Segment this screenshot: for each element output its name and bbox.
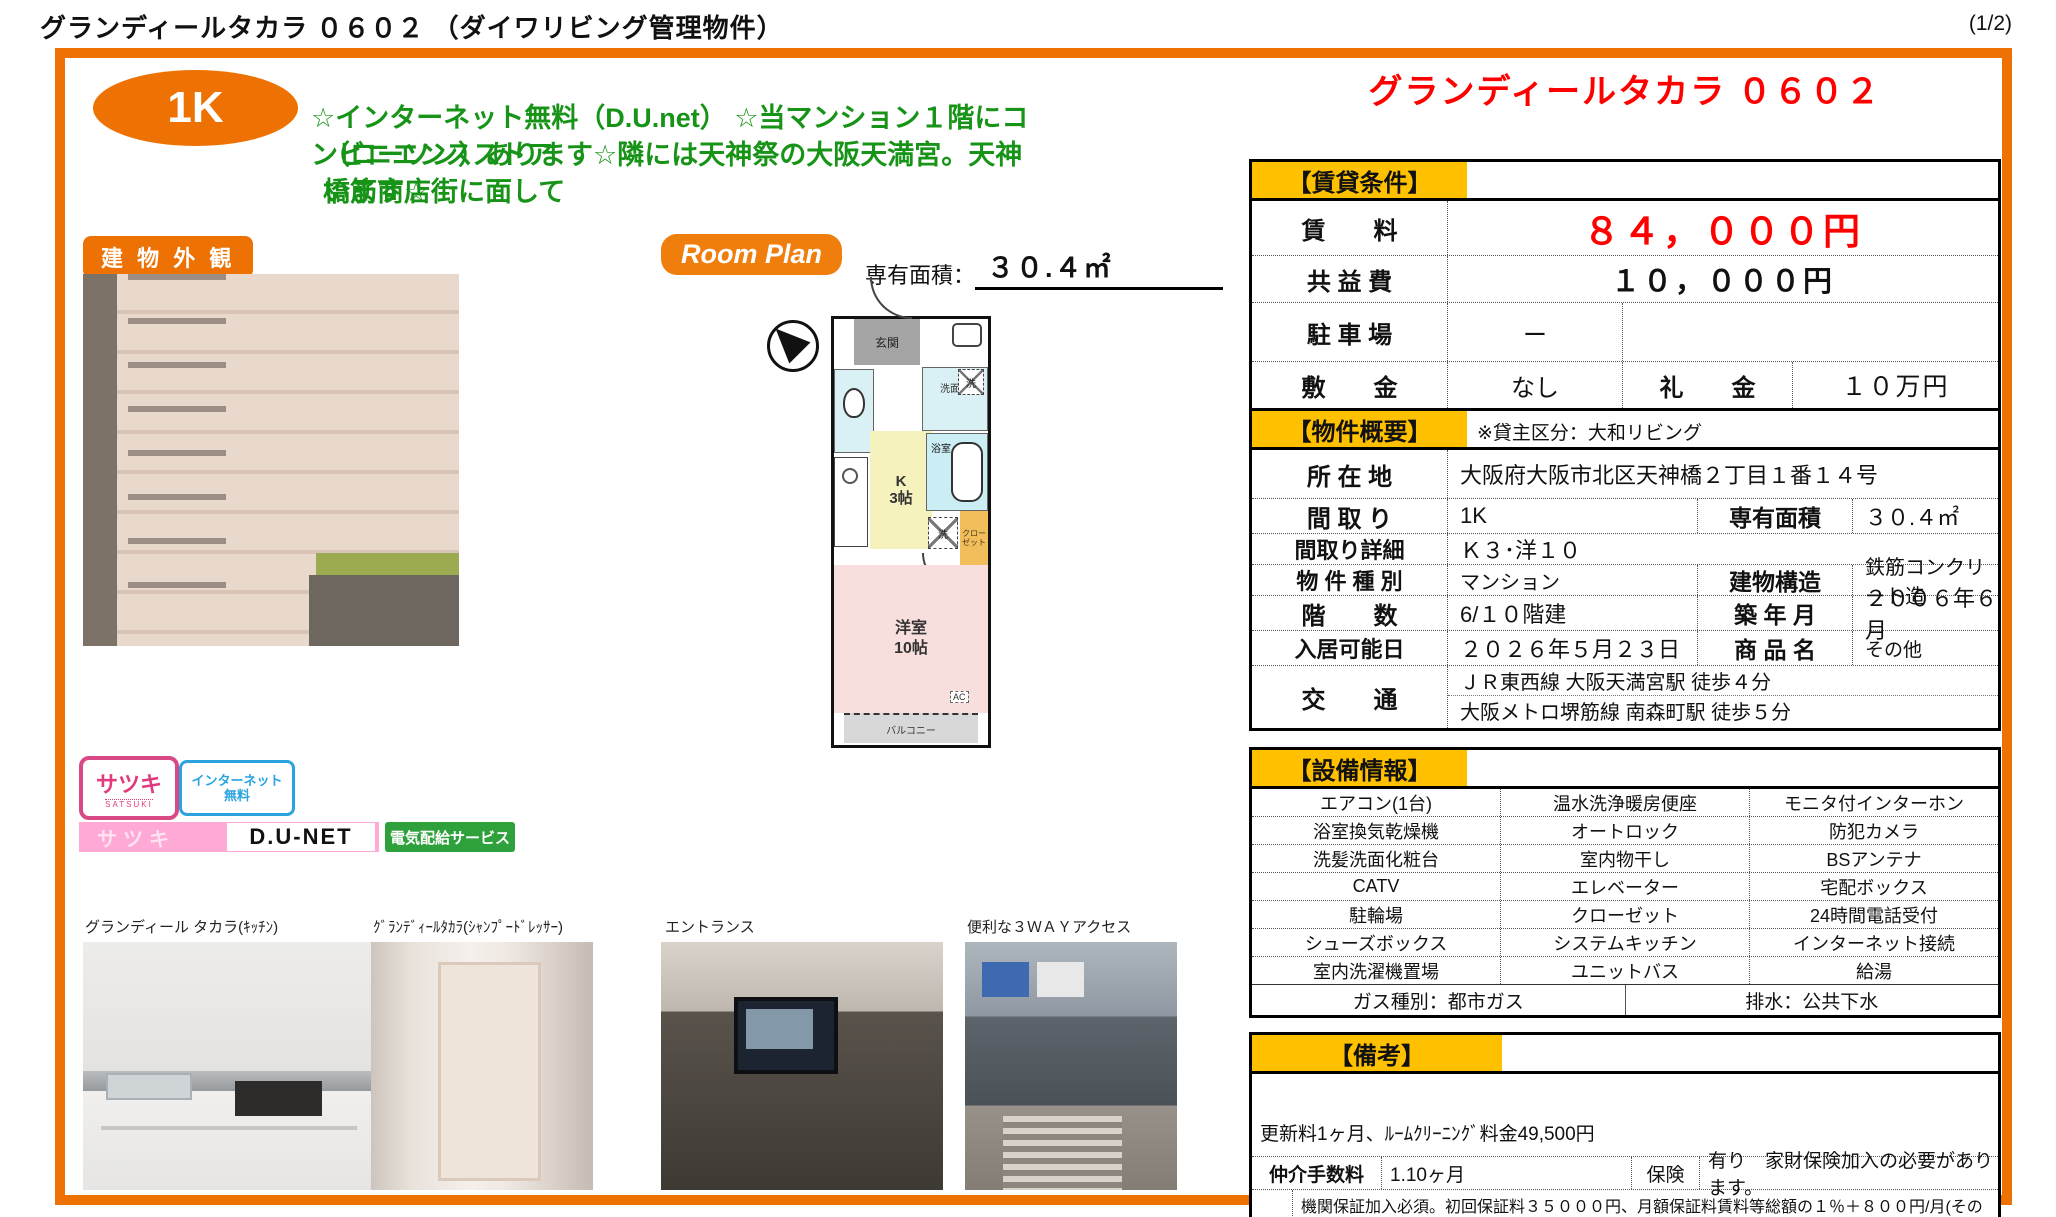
equipment-row: 室内洗濯機置場 ユニットバス 給湯 (1252, 957, 1998, 985)
document-title: グランディールタカラ ０６０２ （ダイワリビング管理物件） (40, 8, 784, 45)
satsuki-logo: サツキ SATSUKI (79, 756, 179, 820)
orange-frame: 1K ☆インターネット無料（D.U.net） ☆当マンション１階にコンビニエンス… (55, 48, 2012, 1205)
rental-conditions-spacer (1467, 162, 1998, 198)
kitchen-stove-shape (235, 1081, 323, 1116)
floorplan-basin-shape (952, 323, 982, 347)
equipment-row: エアコン(1台) 温水洗浄暖房便座 モニタ付インターホン (1252, 789, 1998, 817)
equipment-chip: 【設備情報】 (1252, 750, 1467, 786)
property-outline-table: 【物件概要】 ※貸主区分：大和リビング 所 在 地 大阪府大阪市北区天神橋２丁目… (1249, 411, 2001, 731)
property-type-label: 物 件 種 別 (1252, 565, 1448, 595)
deposit-keymoney-row: 敷 金 なし 礼 金 １０万円 (1252, 362, 1998, 408)
address-label: 所 在 地 (1252, 450, 1448, 498)
floorplan-closet: クロー ゼット (960, 511, 988, 565)
parking-value: ー (1448, 303, 1623, 361)
page-number: (1/2) (1969, 12, 2012, 36)
exclusive-area-label: 専有面積 (1698, 499, 1853, 533)
floorplan-kitchen-counter (834, 457, 868, 547)
product-name-label: 商 品 名 (1698, 631, 1853, 665)
room-plan-badge: Room Plan (661, 234, 842, 275)
equipment-item: CATV (1252, 873, 1501, 900)
exterior-label-badge: 建 物 外 観 (83, 236, 253, 278)
access-label: 交 通 (1252, 666, 1448, 728)
cabinet-handle-shape (101, 1126, 358, 1131)
kitchen-sink-shape (106, 1073, 192, 1099)
floors-value: 6/１０階建 (1448, 596, 1698, 630)
building-balconies-texture (128, 274, 226, 616)
drain-type: 排水：公共下水 (1626, 985, 1999, 1015)
rental-conditions-chip: 【賃貸条件】 (1252, 162, 1467, 198)
caution-text-body: 機関保証加入必須。初回保証料３５０００円、月額保証料賃料等総額の１％＋８００円/… (1301, 1199, 1983, 1217)
kitchen-photo (83, 942, 375, 1190)
stone-wall-shape (309, 575, 459, 646)
station-sign-white (1037, 962, 1084, 997)
remarks-table: 【備考】 更新料1ヶ月、ﾙｰﾑｸﾘｰﾆﾝｸﾞ料金49,500円 仲介手数料 1.… (1249, 1032, 2001, 1217)
equipment-item: 洗髪洗面化粧台 (1252, 845, 1501, 872)
equipment-item: 室内洗濯機置場 (1252, 957, 1501, 984)
equipment-table: 【設備情報】 エアコン(1台) 温水洗浄暖房便座 モニタ付インターホン 浴室換気… (1249, 747, 2001, 1018)
equipment-item: 宅配ボックス (1750, 873, 1998, 900)
equipment-row: シューズボックス システムキッチン インターネット接続 (1252, 929, 1998, 957)
layout-label: 間 取 り (1252, 499, 1448, 533)
movein-value: ２０２６年５月２３日 (1448, 631, 1698, 665)
floorplan-bath: 浴室 (926, 433, 988, 511)
caution-row: 注 意 事 項 機関保証加入必須。初回保証料３５０００円、月額保証料賃料等総額の… (1252, 1190, 1998, 1217)
renewal-fee-text: 更新料1ヶ月、ﾙｰﾑｸﾘｰﾆﾝｸﾞ料金49,500円 (1252, 1074, 1998, 1157)
rental-conditions-table: 【賃貸条件】 賃 料 ８４，０００円 共 益 費 １０，０００円 駐 車 場 ー (1249, 159, 2001, 411)
caution-text: 機関保証加入必須。初回保証料３５０００円、月額保証料賃料等総額の１％＋８００円/… (1293, 1190, 1998, 1217)
built-date-label: 築 年 月 (1698, 596, 1853, 630)
bathtub-shape (951, 442, 983, 502)
property-name-title: グランディールタカラ ０６０２ (1249, 58, 2001, 113)
equipment-item: クローゼット (1501, 901, 1750, 928)
access-lines: ＪＲ東西線 大阪天満宮駅 徒歩４分 大阪メトロ堺筋線 南森町駅 徒歩５分 (1448, 666, 1998, 728)
floorplan-entrance: 玄関 (854, 319, 920, 365)
satsuki-logo-text: サツキ (96, 767, 162, 799)
station-sign-blue (982, 962, 1029, 997)
floors-built-row: 階 数 6/１０階建 築 年 月 ２００６年６月 (1252, 596, 1998, 631)
access-line-2: 大阪メトロ堺筋線 南森町駅 徒歩５分 (1448, 696, 1998, 725)
parking-empty-cell (1623, 303, 1998, 361)
caution-label: 注 意 事 項 (1252, 1190, 1293, 1217)
equipment-item: インターネット接続 (1750, 929, 1998, 956)
equipment-item: システムキッチン (1501, 929, 1750, 956)
photo-caption-shampoo-dresser: ｸﾞﾗﾝﾃﾞｨｰﾙﾀｶﾗ(ｼｬﾝﾌﾟｰﾄﾞﾚｯｻｰ) (373, 916, 563, 937)
common-fee-label: 共 益 費 (1252, 256, 1448, 302)
remarks-chip: 【備考】 (1252, 1035, 1502, 1071)
equipment-item: 浴室換気乾燥機 (1252, 817, 1501, 844)
floor-area-line: 専有面積： ３０.４㎡ (865, 246, 1223, 290)
rent-row: 賃 料 ８４，０００円 (1252, 201, 1998, 256)
equipment-item: 給湯 (1750, 957, 1998, 984)
station-access-photo (965, 942, 1177, 1190)
layout-area-row: 間 取 り 1K 専有面積 ３０.４㎡ (1252, 499, 1998, 534)
property-detail-panel: グランディールタカラ ０６０２ 【賃貸条件】 賃 料 ８４，０００円 共 益 費… (1249, 58, 2001, 1217)
address-value: 大阪府大阪市北区天神橋２丁目１番１４号 (1448, 450, 1998, 498)
flyer-page: グランディールタカラ ０６０２ （ダイワリビング管理物件） (1/2) 1K ☆… (0, 0, 2056, 1217)
layout-value: 1K (1448, 499, 1698, 533)
floors-label: 階 数 (1252, 596, 1448, 630)
equipment-item: 室内物干し (1501, 845, 1750, 872)
equipment-item: ユニットバス (1501, 957, 1750, 984)
satsuki-logo-subtext: SATSUKI (105, 799, 153, 809)
equipment-item: オートロック (1501, 817, 1750, 844)
brokerage-label: 仲介手数料 (1252, 1157, 1382, 1189)
equipment-item: BSアンテナ (1750, 845, 1998, 872)
gas-drain-row: ガス種別：都市ガス 排水：公共下水 (1252, 985, 1998, 1015)
equipment-item: 駐輪場 (1252, 901, 1501, 928)
stove-ring-shape (842, 468, 858, 484)
entrance-photo (661, 942, 943, 1190)
photo-caption-3way-access: 便利な３ＷＡＹアクセス (967, 916, 1131, 937)
built-date-value: ２００６年６月 (1853, 596, 1998, 630)
layout-type-badge: 1K (93, 70, 298, 146)
equipment-header: 【設備情報】 (1252, 750, 1998, 789)
brokerage-value: 1.10ヶ月 (1382, 1157, 1632, 1189)
station-stairs-shape (1003, 1116, 1122, 1190)
equipment-item: 温水洗浄暖房便座 (1501, 789, 1750, 816)
structure-label: 建物構造 (1698, 565, 1853, 595)
gas-type: ガス種別：都市ガス (1252, 985, 1626, 1015)
floor-plan: 玄関 洗面室 洗 K 3帖 浴室 洗 クロー ゼット 洋室 10帖 (831, 316, 991, 748)
common-fee-row: 共 益 費 １０，０００円 (1252, 256, 1998, 303)
satsuki-banner-text: サツキ (79, 823, 175, 852)
satsuki-dunet-banner: サツキ D.U-NET (79, 822, 379, 852)
equipment-item: エレベーター (1501, 873, 1750, 900)
address-row: 所 在 地 大阪府大阪市北区天神橋２丁目１番１４号 (1252, 450, 1998, 499)
entry-door-arc (870, 277, 912, 319)
floorplan-washer-2: 洗 (928, 517, 958, 549)
remarks-header: 【備考】 (1252, 1035, 1998, 1074)
key-money-label: 礼 金 (1623, 362, 1793, 408)
shampoo-dresser-photo (371, 942, 593, 1190)
rent-value: ８４，０００円 (1448, 201, 1998, 255)
equipment-item: 防犯カメラ (1750, 817, 1998, 844)
electric-supply-badge: 電気配給サービス (385, 822, 515, 852)
equipment-item: 24時間電話受付 (1750, 901, 1998, 928)
building-exterior-photo (83, 274, 459, 646)
rent-label: 賃 料 (1252, 201, 1448, 255)
monitor-glow-shape (746, 1009, 814, 1049)
movein-label: 入居可能日 (1252, 631, 1448, 665)
access-row: 交 通 ＪＲ東西線 大阪天満宮駅 徒歩４分 大阪メトロ堺筋線 南森町駅 徒歩５分 (1252, 666, 1998, 728)
common-fee-value: １０，０００円 (1448, 256, 1998, 302)
equipment-item: モニタ付インターホン (1750, 789, 1998, 816)
parking-row: 駐 車 場 ー (1252, 303, 1998, 362)
floorplan-toilet-room (834, 369, 874, 453)
floorplan-kitchen: K 3帖 (870, 431, 932, 549)
toilet-bowl-shape (843, 388, 865, 418)
compass-icon (767, 320, 819, 372)
deposit-label: 敷 金 (1252, 362, 1448, 408)
exclusive-area-value: ３０.４㎡ (1853, 499, 1998, 533)
equipment-item: シューズボックス (1252, 929, 1501, 956)
hallway-door-shape (438, 962, 542, 1181)
photo-caption-kitchen: グランディール タカラ(ｷｯﾁﾝ) (85, 916, 278, 937)
equipment-row: 駐輪場 クローゼット 24時間電話受付 (1252, 901, 1998, 929)
rental-conditions-header: 【賃貸条件】 (1252, 162, 1998, 201)
insurance-value: 有り 家財保険加入の必要があります。 (1700, 1157, 1998, 1189)
floorplan-washer-1: 洗 (958, 369, 984, 395)
remarks-spacer (1502, 1035, 1998, 1071)
property-outline-header: 【物件概要】 ※貸主区分：大和リビング (1252, 411, 1998, 450)
compass-needle (770, 323, 816, 369)
insurance-label: 保険 (1632, 1157, 1700, 1189)
equipment-spacer (1467, 750, 1998, 786)
layout-detail-label: 間取り詳細 (1252, 534, 1448, 564)
promo-line-3: います☆ (323, 174, 1043, 211)
floor-area-value: ３０.４㎡ (975, 246, 1223, 290)
property-type-value: マンション (1448, 565, 1698, 595)
frame-content: 1K ☆インターネット無料（D.U.net） ☆当マンション１階にコンビニエンス… (65, 58, 2002, 1195)
key-money-value: １０万円 (1793, 362, 1998, 408)
bath-label: 浴室 (931, 440, 951, 455)
floorplan-balcony: バルコニー (844, 713, 978, 743)
deposit-value: なし (1448, 362, 1623, 408)
internet-free-badge: インターネット 無料 (179, 760, 295, 816)
property-outline-chip: 【物件概要】 (1252, 411, 1467, 447)
owner-category-note: ※貸主区分：大和リビング (1467, 411, 1998, 447)
equipment-item: エアコン(1台) (1252, 789, 1501, 816)
product-name-value: その他 (1853, 631, 1998, 665)
parking-label: 駐 車 場 (1252, 303, 1448, 361)
dunet-logo: D.U-NET (227, 823, 375, 851)
movein-product-row: 入居可能日 ２０２６年５月２３日 商 品 名 その他 (1252, 631, 1998, 666)
brokerage-insurance-row: 仲介手数料 1.10ヶ月 保険 有り 家財保険加入の必要があります。 (1252, 1157, 1998, 1190)
equipment-row: CATV エレベーター 宅配ボックス (1252, 873, 1998, 901)
access-line-1: ＪＲ東西線 大阪天満宮駅 徒歩４分 (1448, 666, 1998, 696)
equipment-row: 浴室換気乾燥機 オートロック 防犯カメラ (1252, 817, 1998, 845)
photo-caption-entrance: エントランス (665, 916, 755, 937)
ac-unit-label: AC (950, 691, 969, 703)
equipment-row: 洗髪洗面化粧台 室内物干し BSアンテナ (1252, 845, 1998, 873)
